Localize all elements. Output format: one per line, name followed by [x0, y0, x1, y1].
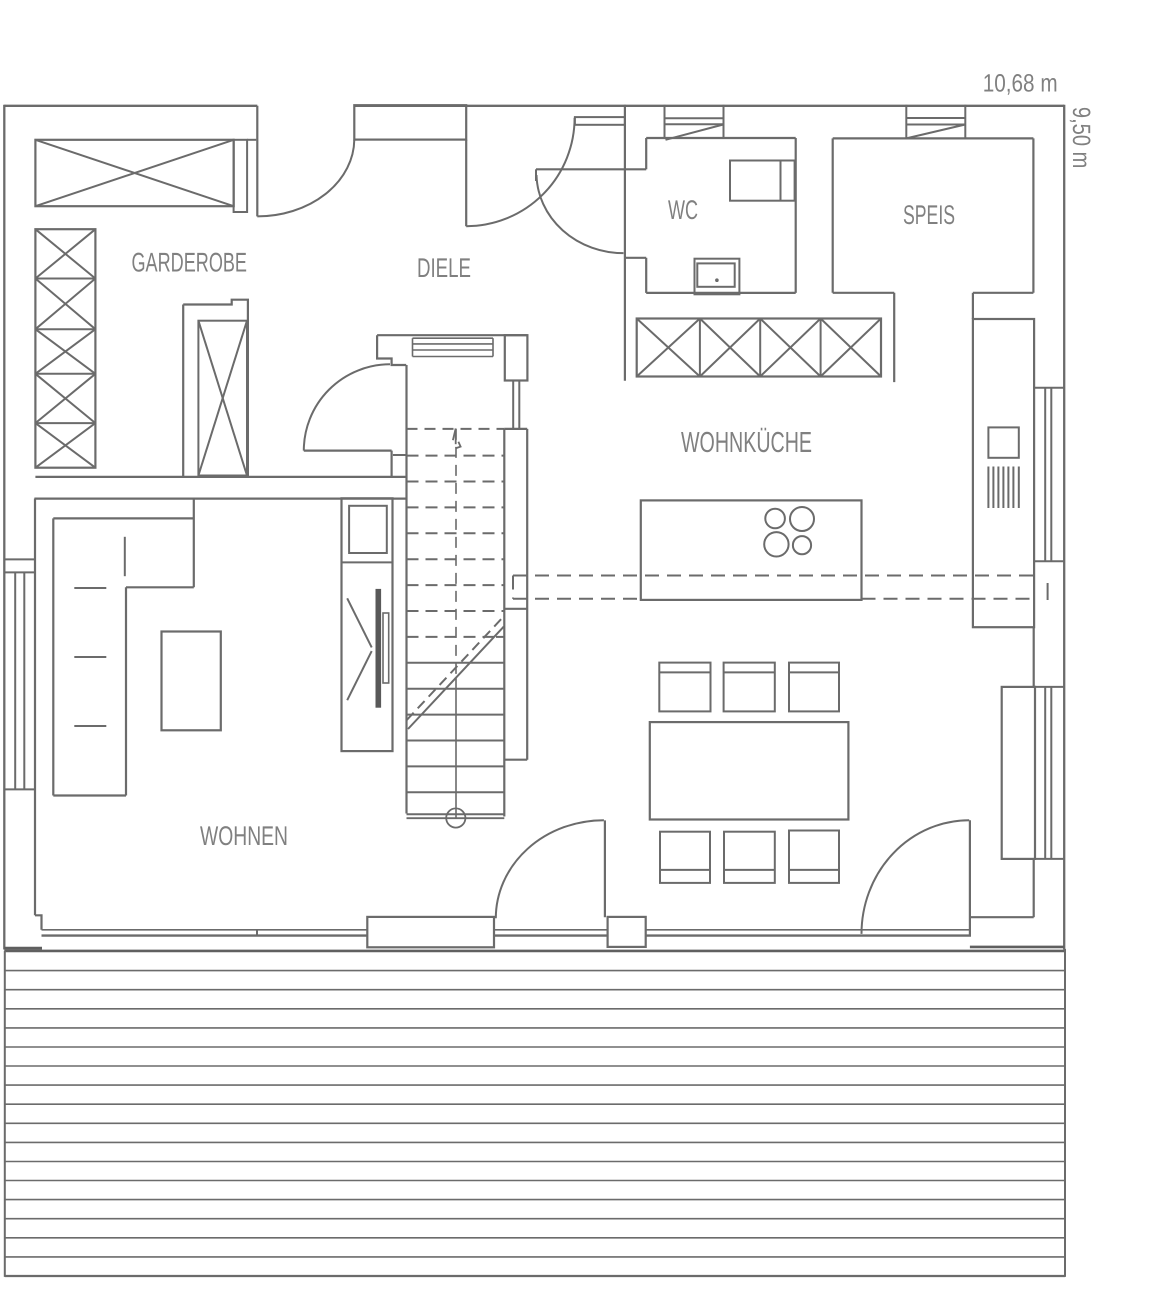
svg-text:SPEIS: SPEIS — [903, 200, 955, 230]
svg-text:GARDEROBE: GARDEROBE — [132, 248, 248, 278]
svg-text:WOHNKÜCHE: WOHNKÜCHE — [681, 427, 812, 459]
svg-text:DIELE: DIELE — [417, 253, 471, 283]
svg-text:WC: WC — [668, 195, 698, 225]
svg-text:10,68 m: 10,68 m — [983, 70, 1058, 98]
svg-text:9,50 m: 9,50 m — [1067, 107, 1095, 168]
svg-text:WOHNEN: WOHNEN — [200, 821, 288, 851]
